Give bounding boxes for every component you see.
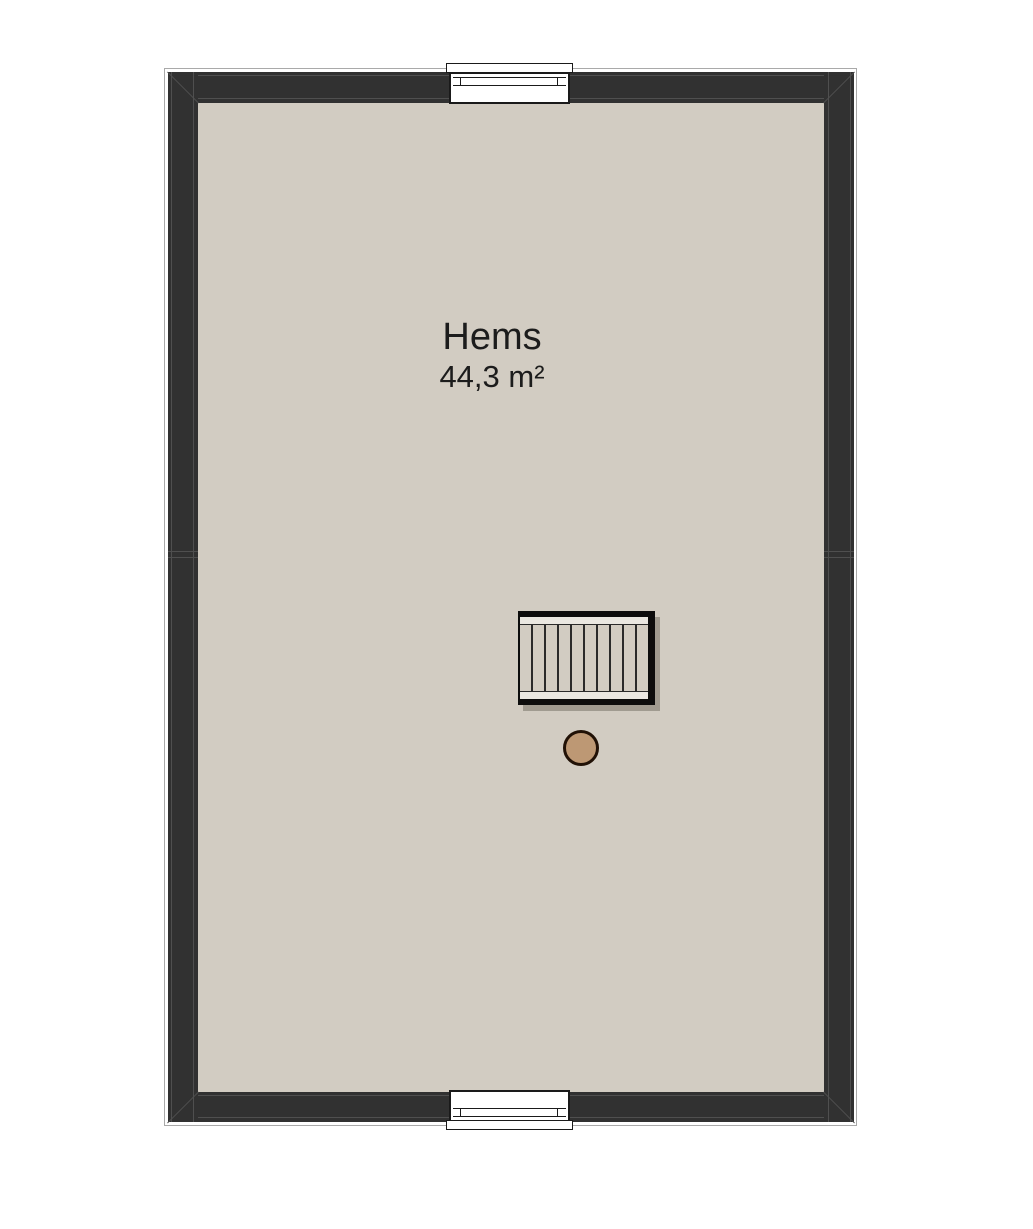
room-label: Hems 44,3 m² [367,317,617,395]
wall-seam-right [824,551,854,552]
window-bottom-sill [446,1120,573,1130]
room-name: Hems [367,317,617,357]
staircase [518,611,655,705]
room-area: 44,3 m² [367,359,617,395]
window-glazing-tick [460,78,461,85]
stair-stringer-bottom [520,691,648,699]
stair-tread [533,625,546,691]
wall-seam-left [168,551,198,552]
room-floor [198,103,824,1092]
window-bottom [449,1090,570,1122]
stair-treads [520,625,648,691]
wall-left [168,72,198,1122]
stair-tread [598,625,611,691]
stair-tread [624,625,637,691]
stair-tread [559,625,572,691]
window-glazing-tick [557,1109,558,1116]
column [563,730,599,766]
wall-seam-right [824,557,854,558]
stair-tread [546,625,559,691]
window-glazing-tick [557,78,558,85]
wall-seam-left [168,557,198,558]
window-bottom-glazing [453,1108,566,1117]
stair-tread [611,625,624,691]
stair-tread [637,625,648,691]
window-glazing-tick [460,1109,461,1116]
stair-tread [520,625,533,691]
stair-tread [585,625,598,691]
stair-stringer-top [520,617,648,625]
stair-tread [572,625,585,691]
window-top-glazing [453,77,566,86]
wall-right [824,72,854,1122]
window-top [449,72,570,104]
floorplan-canvas: Hems 44,3 m² [0,0,1033,1229]
